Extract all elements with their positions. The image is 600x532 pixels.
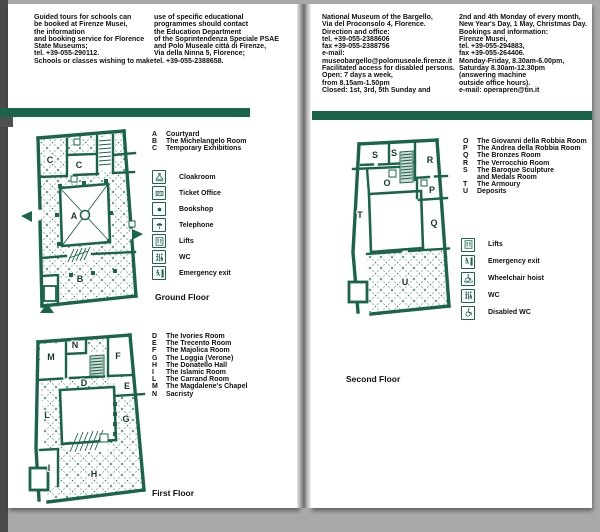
facility-row: WC (152, 249, 231, 265)
room-name: Temporary Exhibitions (166, 145, 241, 152)
room-legend-row: DThe Ivories Room (152, 333, 247, 340)
facility-row: Ticket Office (152, 185, 231, 201)
room-legend-row: RThe Verrocchio Room (463, 160, 587, 167)
telephone-icon (152, 218, 166, 232)
map-room-letter-d: D (81, 378, 88, 388)
room-legend-row: NSacristy (152, 391, 247, 398)
facility-row: Emergency exit (461, 253, 544, 270)
room-letter: E (152, 340, 166, 347)
room-legend-row: HThe Donatello Hall (152, 362, 247, 369)
room-name: The Michelangelo Room (166, 138, 247, 145)
ground-floor-walls (21, 131, 143, 313)
map-room-letter-o: O (383, 178, 390, 188)
map-room-letter-s: S (391, 148, 397, 158)
intro-column-1: Guided tours for schools can be booked a… (34, 14, 156, 65)
wc-icon (461, 289, 475, 303)
facility-label: Ticket Office (179, 190, 221, 197)
emergency-exit-icon (152, 266, 166, 280)
map-room-letter-q: Q (430, 218, 437, 228)
room-legend-row: LThe Carrand Room (152, 376, 247, 383)
photo-edge-left (0, 0, 8, 532)
room-legend-row: IThe Islamic Room (152, 369, 247, 376)
map-room-letter-r: R (427, 155, 434, 165)
facility-row: Telephone (152, 217, 231, 233)
map-room-letter-n: N (72, 340, 79, 350)
room-name: The Armoury (477, 181, 520, 188)
first-floor-room-legend: DThe Ivories Room EThe Trecento Room FTh… (152, 333, 247, 398)
ground-floor-room-legend: A Courtyard B The Michelangelo Room C Te… (152, 131, 247, 153)
room-letter: P (463, 145, 477, 152)
bookshop-icon (152, 202, 166, 216)
facility-row: Emergency exit (152, 265, 231, 281)
room-legend-row: A Courtyard (152, 131, 247, 138)
lifts-icon (461, 238, 475, 252)
green-divider-bar-left (0, 108, 250, 117)
room-letter: F (152, 347, 166, 354)
room-legend-row: SThe Baroque Sculpture and Medals Room (463, 167, 587, 181)
facility-label: Disabled WC (488, 309, 531, 316)
second-floor-facilities-legend: Lifts Emergency exit Wheelchair hoist WC… (461, 236, 544, 321)
facility-label: Cloakroom (179, 174, 216, 181)
room-letter: I (152, 369, 166, 376)
room-legend-row: FThe Majolica Room (152, 347, 247, 354)
ground-floor-label: Ground Floor (155, 292, 209, 302)
facility-row: Lifts (152, 233, 231, 249)
map-room-letter-f: F (115, 351, 121, 361)
second-floor-label: Second Floor (346, 374, 400, 384)
wheelchair-hoist-icon (461, 272, 475, 286)
room-name: The Baroque Sculpture and Medals Room (477, 167, 554, 181)
room-letter: T (463, 181, 477, 188)
facility-label: Bookshop (179, 206, 213, 213)
room-name: The Magdalene's Chapel (166, 383, 247, 390)
map-room-letter-e: E (124, 381, 130, 391)
room-legend-row: EThe Trecento Room (152, 340, 247, 347)
room-name: The Islamic Room (166, 369, 226, 376)
map-room-letter-c: C (47, 155, 54, 165)
facility-label: Wheelchair hoist (488, 275, 544, 282)
facility-label: Lifts (488, 241, 503, 248)
second-floor-map: S S R O P T Q U (337, 136, 459, 318)
map-room-letter-a: A (71, 211, 78, 221)
map-room-letter-p: P (429, 185, 435, 195)
facility-label: Emergency exit (179, 270, 231, 277)
map-room-letter-u: U (402, 277, 409, 287)
map-room-letter-s: S (372, 150, 378, 160)
room-letter: Q (463, 152, 477, 159)
room-letter: N (152, 391, 166, 398)
lifts-icon (152, 234, 166, 248)
map-room-letter-c: C (76, 160, 83, 170)
room-name: The Ivories Room (166, 333, 225, 340)
room-name: The Carrand Room (166, 376, 229, 383)
green-divider-bar-right (312, 111, 592, 120)
first-floor-map: M N F D E L G I H (12, 332, 154, 507)
room-letter: U (463, 188, 477, 195)
map-room-letter-i: I (48, 463, 51, 473)
facility-label: WC (488, 292, 500, 299)
room-legend-row: PThe Andrea della Robbia Room (463, 145, 587, 152)
room-letter: G (152, 355, 166, 362)
room-letter: B (152, 138, 166, 145)
east-exit-arrow (132, 229, 143, 240)
disabled-wc-icon (461, 306, 475, 320)
room-name: Sacristy (166, 391, 193, 398)
map-room-letter-b: B (77, 274, 84, 284)
room-letter: A (152, 131, 166, 138)
room-letter: R (463, 160, 477, 167)
photo-edge-step (0, 117, 13, 127)
room-name: The Verrocchio Room (477, 160, 549, 167)
room-name: The Majolica Room (166, 347, 230, 354)
map-room-letter-m: M (47, 352, 55, 362)
ticket-office-icon (152, 186, 166, 200)
room-legend-row: MThe Magdalene's Chapel (152, 383, 247, 390)
facility-row: Disabled WC (461, 304, 544, 321)
brochure-scan: Guided tours for schools can be booked a… (0, 0, 600, 532)
facility-label: Lifts (179, 238, 194, 245)
facility-label: Telephone (179, 222, 213, 229)
room-name: The Bronzes Room (477, 152, 541, 159)
room-letter: C (152, 145, 166, 152)
room-letter: O (463, 138, 477, 145)
cloakroom-icon (152, 170, 166, 184)
first-floor-label: First Floor (152, 488, 194, 498)
right-page: National Museum of the Bargello, Via del… (311, 4, 592, 508)
ground-floor-map: C C A B (14, 126, 149, 314)
room-name: The Trecento Room (166, 340, 231, 347)
facility-row: WC (461, 287, 544, 304)
room-letter: D (152, 333, 166, 340)
facility-label: WC (179, 254, 191, 261)
map-room-letter-h: H (91, 469, 98, 479)
room-name: The Giovanni della Robbia Room (477, 138, 587, 145)
left-page: Guided tours for schools can be booked a… (8, 4, 299, 508)
room-name: Courtyard (166, 131, 199, 138)
room-letter: M (152, 383, 166, 390)
room-name: Deposits (477, 188, 507, 195)
room-letter: H (152, 362, 166, 369)
room-legend-row: GThe Loggia (Verone) (152, 355, 247, 362)
wc-icon (152, 250, 166, 264)
room-letter: L (152, 376, 166, 383)
room-letter: S (463, 167, 477, 181)
room-name: The Andrea della Robbia Room (477, 145, 581, 152)
info-column-2: 2nd and 4th Monday of every month, New Y… (459, 14, 591, 94)
facility-row: Lifts (461, 236, 544, 253)
room-name: The Loggia (Verone) (166, 355, 233, 362)
second-floor-room-legend: OThe Giovanni della Robbia Room PThe And… (463, 138, 587, 196)
facility-row: Cloakroom (152, 169, 231, 185)
map-room-letter-t: T (357, 210, 363, 220)
intro-column-2: use of specific educational programmes s… (154, 14, 296, 65)
room-legend-row: B The Michelangelo Room (152, 138, 247, 145)
facility-row: Bookshop (152, 201, 231, 217)
room-legend-row: QThe Bronzes Room (463, 152, 587, 159)
west-exit-arrow (21, 211, 32, 222)
page-gutter-fold (297, 4, 311, 508)
facility-label: Emergency exit (488, 258, 540, 265)
map-room-letter-g: G (122, 414, 129, 424)
room-legend-row: C Temporary Exhibitions (152, 145, 247, 152)
room-name: The Donatello Hall (166, 362, 227, 369)
map-room-letter-l: L (44, 410, 50, 420)
emergency-exit-icon (461, 255, 475, 269)
room-legend-row: TThe Armoury (463, 181, 587, 188)
room-legend-row: OThe Giovanni della Robbia Room (463, 138, 587, 145)
ground-floor-facilities-legend: Cloakroom Ticket Office Bookshop Telepho… (152, 169, 231, 281)
info-column-1: National Museum of the Bargello, Via del… (322, 14, 458, 94)
facility-row: Wheelchair hoist (461, 270, 544, 287)
room-legend-row: UDeposits (463, 188, 587, 195)
